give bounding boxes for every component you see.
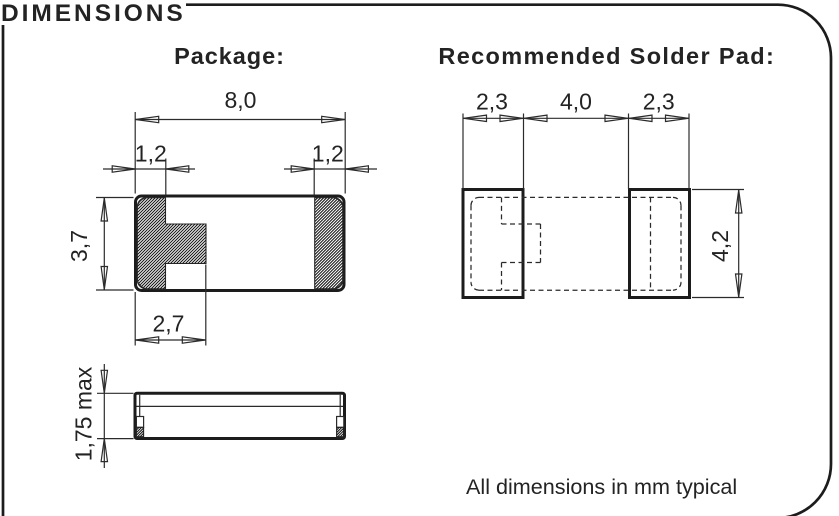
svg-text:All dimensions in mm typical: All dimensions in mm typical: [466, 474, 737, 499]
svg-text:DIMENSIONS: DIMENSIONS: [1, 0, 186, 27]
svg-text:2,3: 2,3: [643, 89, 675, 115]
svg-text:1,2: 1,2: [312, 141, 344, 167]
svg-text:1,75 max: 1,75 max: [71, 366, 97, 461]
svg-text:8,0: 8,0: [225, 87, 257, 113]
svg-text:Package:: Package:: [174, 43, 285, 69]
svg-text:4,2: 4,2: [707, 230, 733, 262]
svg-text:3,7: 3,7: [66, 230, 92, 262]
svg-text:2,7: 2,7: [153, 311, 185, 337]
svg-text:2,3: 2,3: [476, 89, 508, 115]
svg-text:4,0: 4,0: [560, 89, 592, 115]
svg-text:1,2: 1,2: [135, 141, 167, 167]
svg-text:Recommended Solder Pad:: Recommended Solder Pad:: [438, 43, 775, 69]
